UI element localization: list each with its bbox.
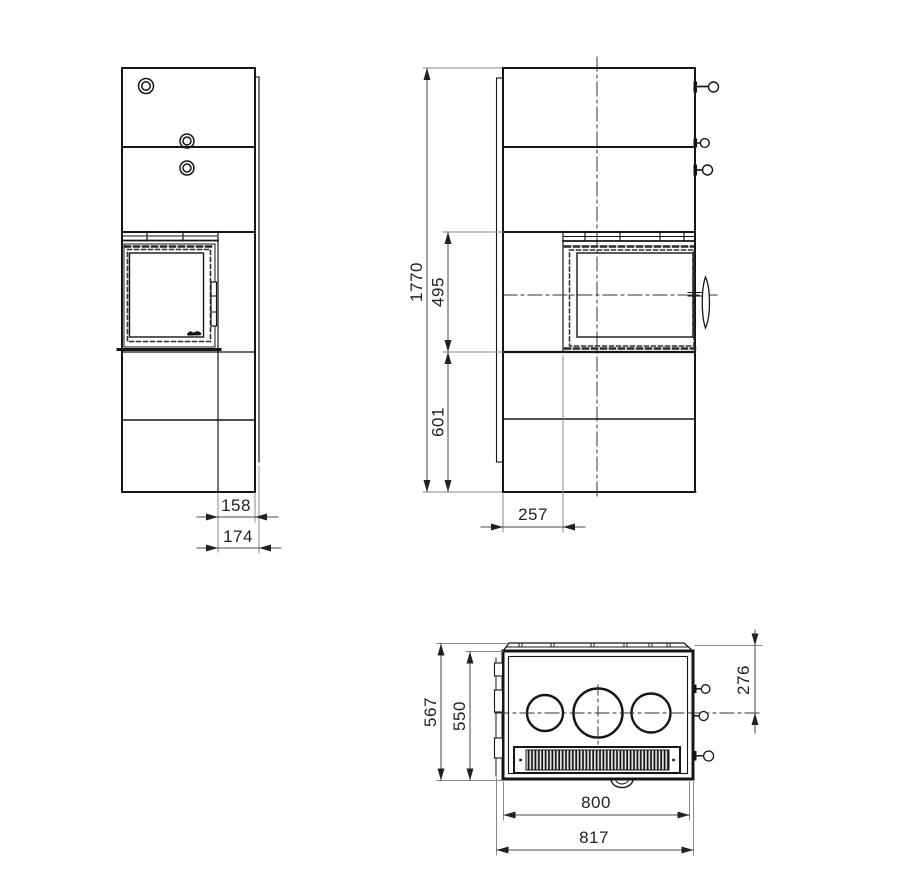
dimension-label-817: 817 xyxy=(579,828,609,847)
brand-logo-icon xyxy=(187,331,202,335)
air-control-knob-top xyxy=(694,82,719,93)
dimension-label-174: 174 xyxy=(223,527,253,546)
dimension-1770: 1770 xyxy=(407,68,427,492)
top-knob-lower xyxy=(694,751,714,761)
top-knob-upper xyxy=(694,685,710,694)
side-view: 1770 495 601 257 xyxy=(407,57,719,532)
dimension-567: 567 xyxy=(421,644,441,781)
door-frame xyxy=(124,244,215,347)
door-handle-side xyxy=(688,277,709,328)
top-dimension-lines: 567 550 276 800 xyxy=(421,630,762,855)
side-body-outline xyxy=(503,68,695,492)
front-view: 158 174 xyxy=(118,68,281,553)
firebox-door-front xyxy=(118,232,220,350)
dimension-174: 174 xyxy=(197,527,281,548)
air-control-knob-lower xyxy=(694,165,713,176)
front-body-outline xyxy=(122,68,255,492)
dimension-label-800: 800 xyxy=(581,793,611,812)
firebox-seal-outline xyxy=(570,250,695,346)
door-glass xyxy=(130,253,204,337)
dimension-601: 601 xyxy=(429,352,449,492)
door-seal-outline xyxy=(128,250,211,342)
dimension-label-601: 601 xyxy=(429,407,448,437)
stove-dimension-drawing: 158 174 xyxy=(0,0,897,882)
dimension-550: 550 xyxy=(450,652,470,781)
mounting-hole-top-left xyxy=(139,79,154,94)
dimension-label-495: 495 xyxy=(429,277,448,307)
dimension-label-550: 550 xyxy=(450,701,469,731)
convection-grille xyxy=(514,747,680,773)
mounting-hole-center-lower xyxy=(180,161,194,175)
dimension-800: 800 xyxy=(504,782,690,820)
mounting-hole-center-upper xyxy=(180,134,194,148)
dimension-label-567: 567 xyxy=(421,697,440,727)
dimension-label-1770: 1770 xyxy=(407,262,426,302)
dimension-817: 817 xyxy=(497,778,694,855)
dimension-495: 495 xyxy=(429,232,449,352)
dimension-158: 158 xyxy=(197,496,278,517)
door-handle-front xyxy=(211,282,217,326)
dimension-label-158: 158 xyxy=(221,496,251,515)
firebox-side xyxy=(503,232,718,352)
dimension-label-276: 276 xyxy=(734,665,753,695)
top-view: 567 550 276 800 xyxy=(421,630,762,855)
drawing-sheet: 158 174 xyxy=(0,0,897,882)
front-dimension-lines: 158 174 xyxy=(197,466,281,553)
air-control-knob-middle xyxy=(694,139,710,148)
top-left-cladding-edge xyxy=(495,658,503,776)
dimension-label-257: 257 xyxy=(518,505,548,524)
